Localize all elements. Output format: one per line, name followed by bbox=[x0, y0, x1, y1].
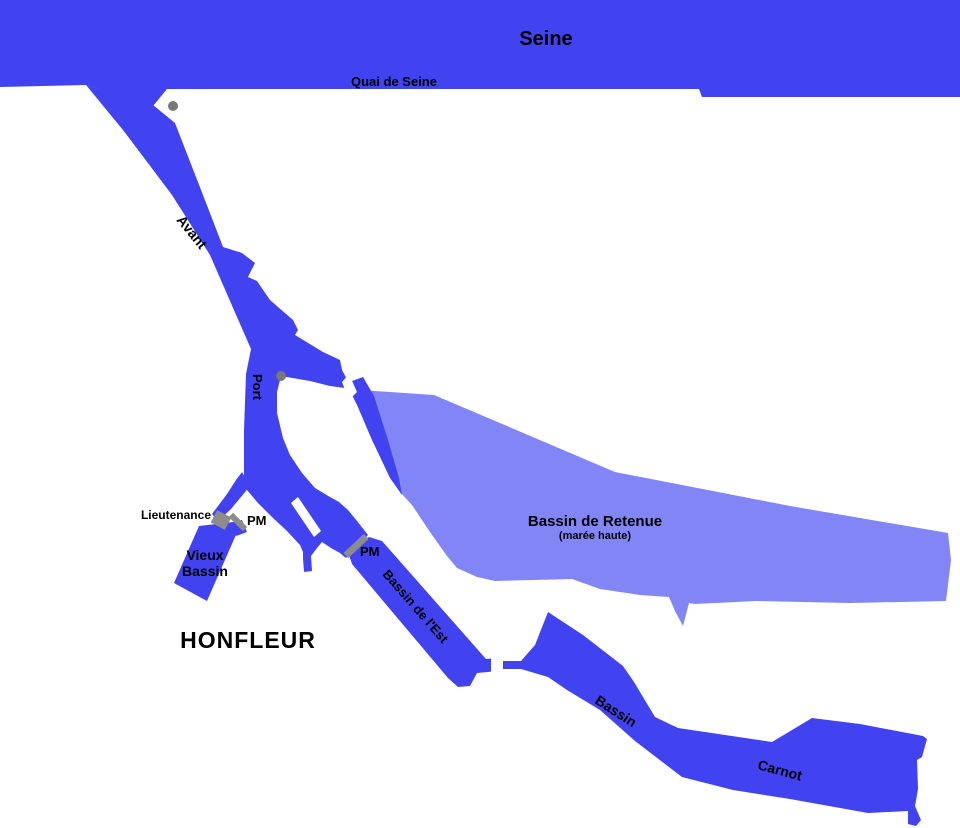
seine-river bbox=[0, 0, 960, 106]
jetty-dot-port bbox=[276, 371, 286, 381]
vieux-bassin-label-line2: Bassin bbox=[182, 563, 228, 579]
vieux-bassin-label-line1: Vieux bbox=[186, 547, 223, 563]
port-label: Port bbox=[250, 374, 265, 401]
bassin-de-retenue bbox=[361, 390, 951, 626]
lieutenance-label: Lieutenance bbox=[141, 508, 211, 522]
bassin-carnot bbox=[503, 612, 927, 826]
pm-vieux-label: PM bbox=[247, 513, 267, 528]
bassin-de-retenue-note: (marée haute) bbox=[559, 530, 631, 542]
pm-est-label: PM bbox=[360, 544, 380, 559]
bassin-de-retenue-label: Bassin de Retenue bbox=[528, 513, 662, 530]
est-carnot-lock-gap bbox=[491, 654, 501, 675]
quai-de-seine-label: Quai de Seine bbox=[351, 74, 437, 89]
map-canvas: Seine Quai de Seine Avant Port Lieutenan… bbox=[0, 0, 960, 828]
honfleur-town-label: HONFLEUR bbox=[180, 627, 316, 653]
honfleur-port-map: Seine Quai de Seine Avant Port Lieutenan… bbox=[0, 0, 960, 828]
seine-label: Seine bbox=[519, 28, 572, 50]
jetty-dot-seine bbox=[168, 101, 178, 111]
